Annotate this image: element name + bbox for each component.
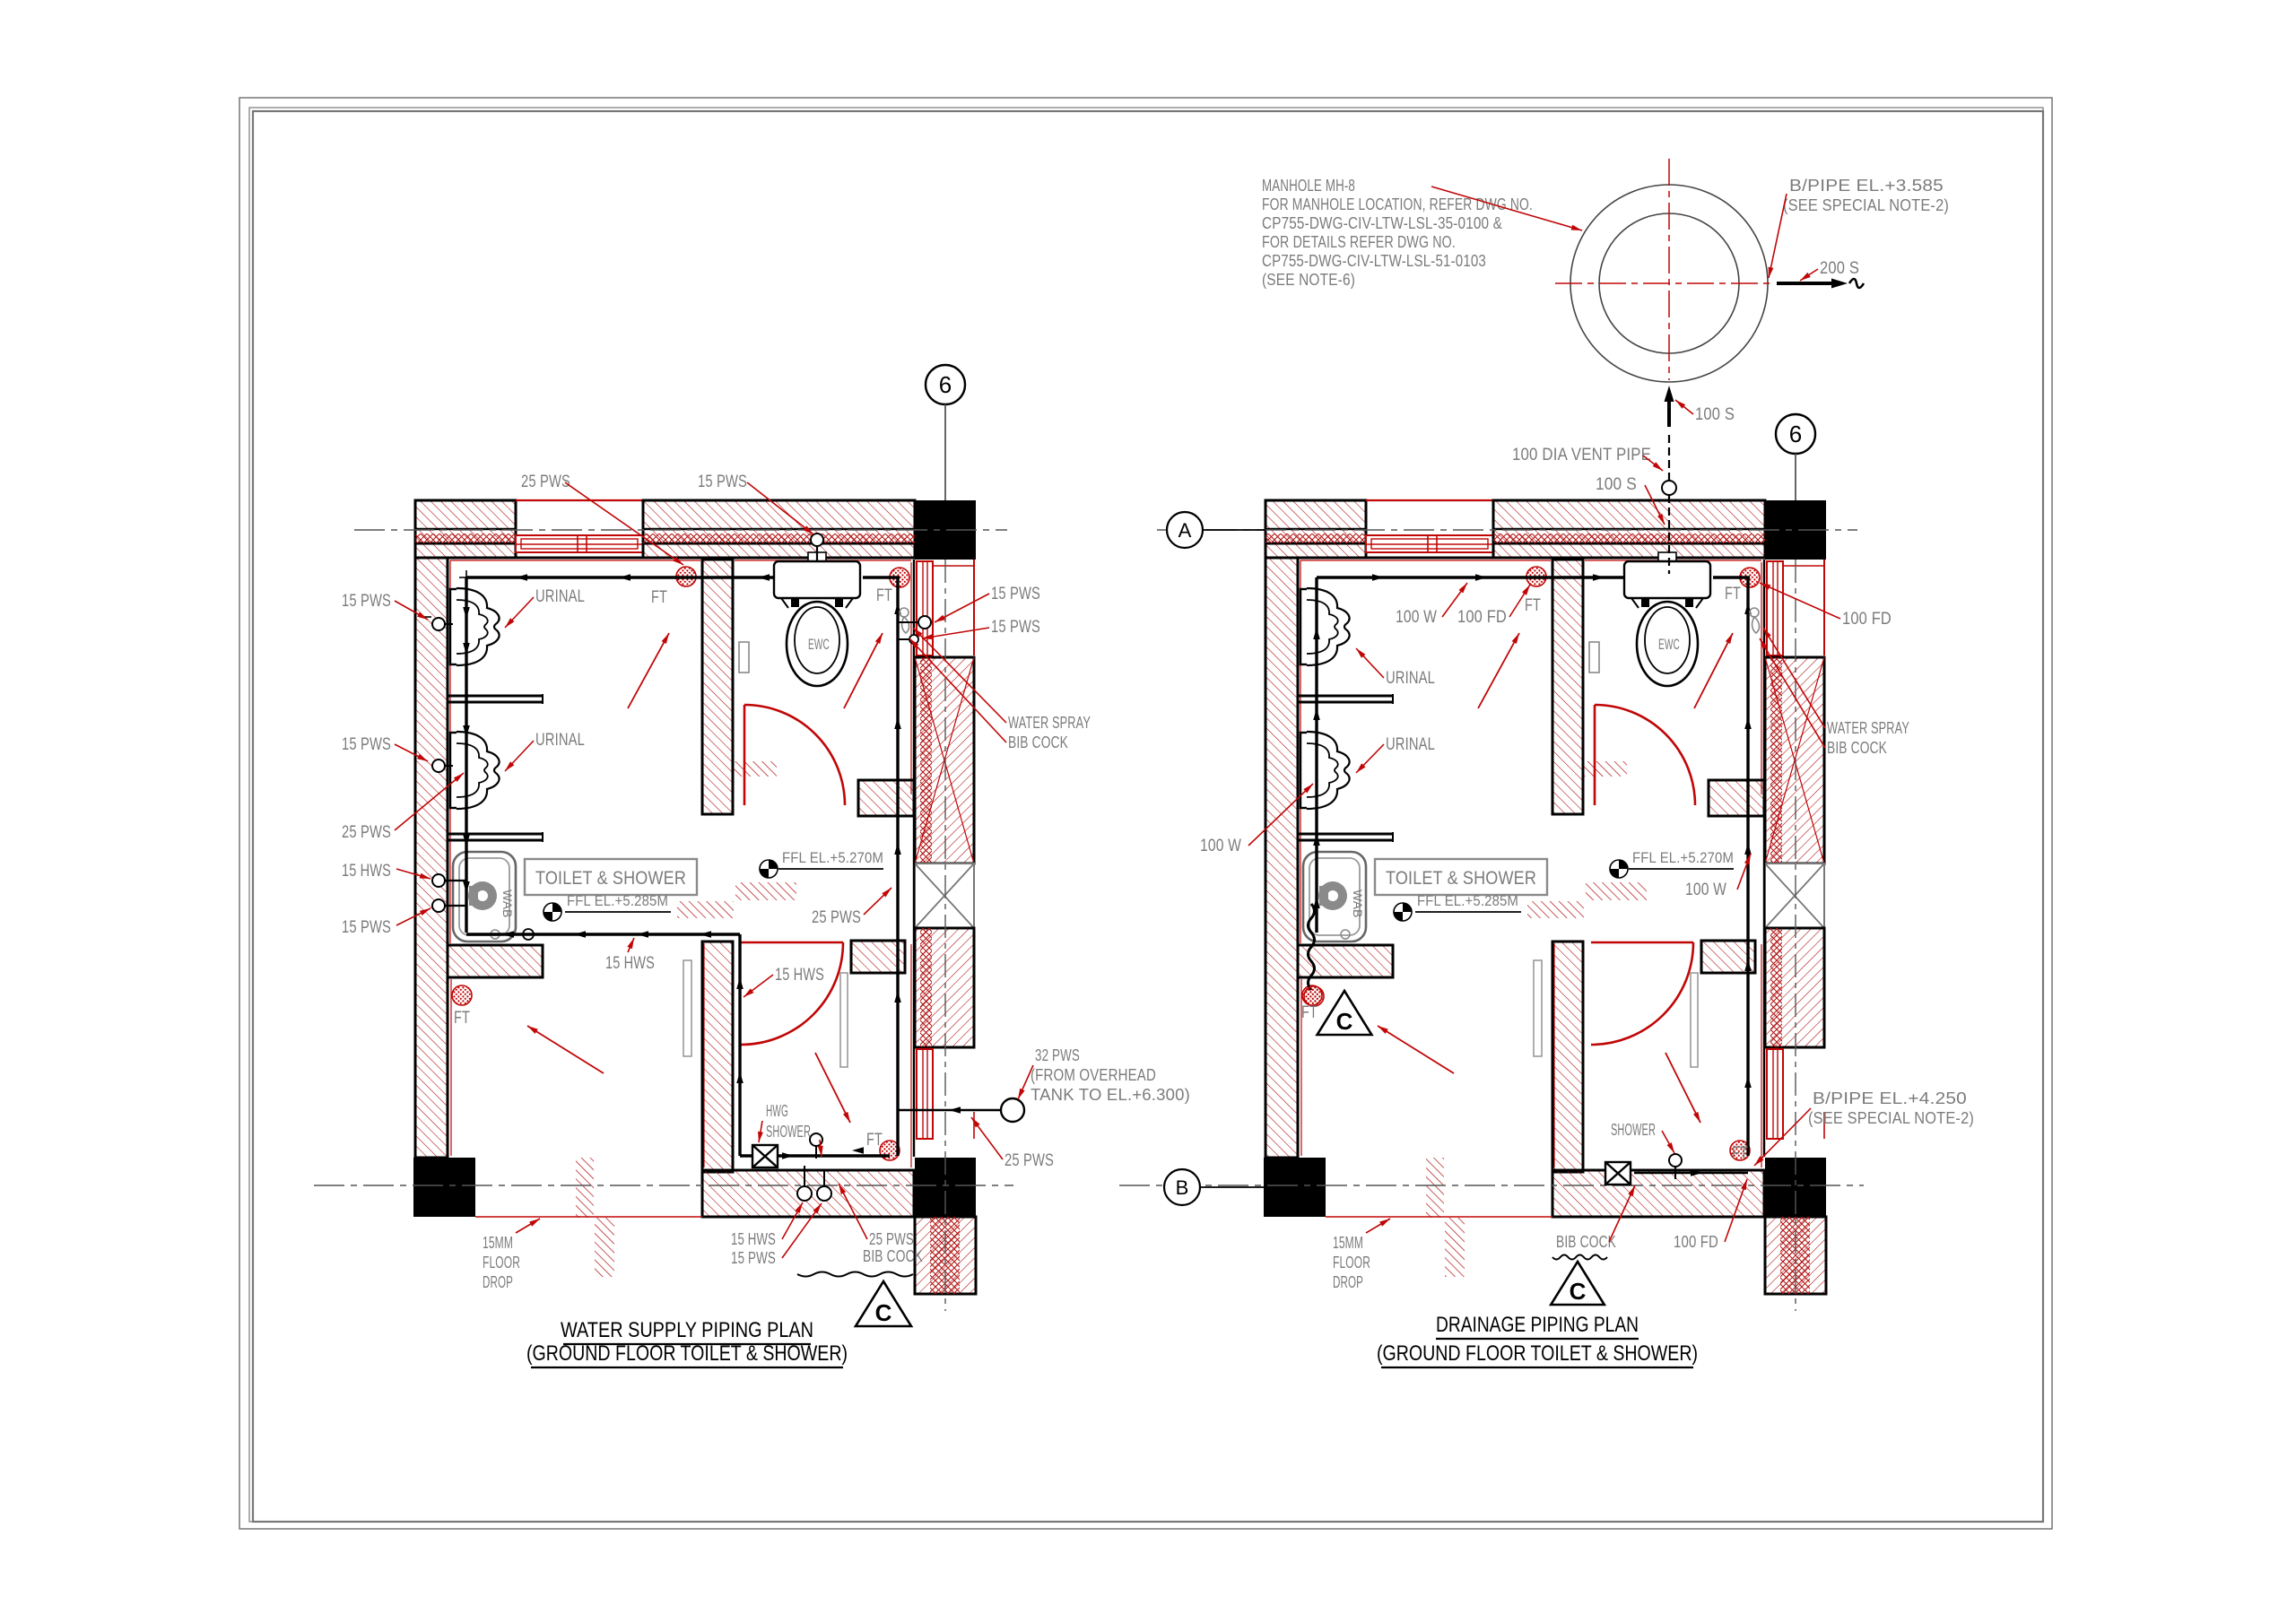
- svg-text:15 PWS: 15 PWS: [342, 591, 391, 611]
- svg-text:15 HWS: 15 HWS: [731, 1230, 776, 1248]
- svg-text:FT: FT: [1301, 1003, 1318, 1022]
- svg-text:15 HWS: 15 HWS: [775, 965, 824, 985]
- svg-text:WAB: WAB: [500, 890, 515, 917]
- svg-text:WAB: WAB: [1351, 890, 1365, 917]
- svg-text:WATER SUPPLY PIPING PLAN: WATER SUPPLY PIPING PLAN: [561, 1318, 813, 1342]
- svg-text:HWG: HWG: [766, 1102, 788, 1120]
- svg-text:15 PWS: 15 PWS: [991, 584, 1040, 603]
- svg-text:FLOOR: FLOOR: [1333, 1254, 1370, 1271]
- svg-text:(SEE NOTE-6): (SEE NOTE-6): [1262, 270, 1355, 289]
- svg-text:B: B: [1176, 1176, 1189, 1199]
- svg-text:32 PWS: 32 PWS: [1035, 1046, 1080, 1064]
- svg-text:15MM: 15MM: [1333, 1234, 1363, 1252]
- svg-text:C: C: [1570, 1278, 1587, 1305]
- svg-text:15MM: 15MM: [483, 1234, 513, 1252]
- svg-text:B/PIPE EL.+3.585: B/PIPE EL.+3.585: [1789, 177, 1944, 195]
- svg-text:FT: FT: [866, 1131, 883, 1150]
- svg-text:(SEE SPECIAL NOTE-2): (SEE SPECIAL NOTE-2): [1783, 196, 1949, 214]
- svg-text:EWC: EWC: [1658, 636, 1680, 653]
- svg-text:SHOWER: SHOWER: [1611, 1121, 1656, 1139]
- svg-text:TOILET & SHOWER: TOILET & SHOWER: [1386, 868, 1536, 889]
- svg-text:100 W: 100 W: [1685, 880, 1726, 899]
- svg-text:100 W: 100 W: [1396, 607, 1437, 627]
- svg-text:A: A: [1178, 519, 1192, 542]
- svg-text:100 DIA VENT PIPE: 100 DIA VENT PIPE: [1512, 445, 1651, 464]
- svg-text:BIB COCK: BIB COCK: [863, 1247, 923, 1265]
- svg-text:FFL EL.+5.285M: FFL EL.+5.285M: [567, 892, 668, 909]
- svg-text:100 FD: 100 FD: [1674, 1233, 1718, 1251]
- svg-text:FT: FT: [651, 588, 667, 607]
- svg-text:TOILET & SHOWER: TOILET & SHOWER: [535, 868, 686, 889]
- svg-text:15 PWS: 15 PWS: [698, 472, 747, 491]
- svg-text:15 HWS: 15 HWS: [605, 953, 655, 973]
- svg-text:WATER SPRAY: WATER SPRAY: [1827, 719, 1909, 737]
- svg-text:FT: FT: [876, 586, 892, 605]
- svg-text:15 PWS: 15 PWS: [991, 617, 1040, 637]
- svg-text:FT: FT: [1725, 585, 1741, 603]
- svg-text:EWC: EWC: [808, 636, 830, 653]
- svg-text:CP755-DWG-CIV-LTW-LSL-35-0100: CP755-DWG-CIV-LTW-LSL-35-0100 &: [1262, 213, 1502, 232]
- svg-text:15 PWS: 15 PWS: [731, 1249, 776, 1267]
- svg-text:FT: FT: [454, 1009, 470, 1028]
- svg-text:15 PWS: 15 PWS: [342, 734, 391, 754]
- svg-text:100 W: 100 W: [1200, 836, 1241, 855]
- svg-text:FT: FT: [1525, 596, 1541, 615]
- svg-text:200 S: 200 S: [1820, 259, 1859, 278]
- svg-text:100 S: 100 S: [1596, 474, 1637, 494]
- svg-text:FFL EL.+5.270M: FFL EL.+5.270M: [1632, 849, 1734, 866]
- svg-text:C: C: [875, 1299, 892, 1326]
- svg-text:BIB COCK: BIB COCK: [1008, 733, 1068, 751]
- svg-text:URINAL: URINAL: [535, 730, 585, 750]
- svg-text:MANHOLE MH-8: MANHOLE MH-8: [1262, 176, 1355, 195]
- svg-text:DROP: DROP: [1333, 1273, 1363, 1291]
- svg-text:CP755-DWG-CIV-LTW-LSL-51-0103: CP755-DWG-CIV-LTW-LSL-51-0103: [1262, 251, 1486, 270]
- svg-text:FLOOR: FLOOR: [483, 1254, 520, 1271]
- svg-text:25 PWS: 25 PWS: [1004, 1150, 1054, 1170]
- svg-text:BIB COCK: BIB COCK: [1556, 1233, 1616, 1251]
- svg-text:25 PWS: 25 PWS: [812, 907, 861, 927]
- svg-text:FFL EL.+5.285M: FFL EL.+5.285M: [1417, 892, 1518, 909]
- svg-text:(FROM OVERHEAD: (FROM OVERHEAD: [1031, 1066, 1156, 1084]
- svg-text:100 FD: 100 FD: [1842, 609, 1892, 629]
- svg-text:C: C: [1336, 1008, 1353, 1035]
- svg-text:DRAINAGE PIPING PLAN: DRAINAGE PIPING PLAN: [1436, 1313, 1639, 1337]
- svg-text:URINAL: URINAL: [1386, 734, 1435, 754]
- svg-text:TANK TO EL.+6.300): TANK TO EL.+6.300): [1031, 1086, 1190, 1104]
- svg-text:15 HWS: 15 HWS: [342, 861, 391, 881]
- svg-text:100 S: 100 S: [1695, 405, 1735, 424]
- svg-text:25 PWS: 25 PWS: [521, 472, 570, 491]
- svg-text:URINAL: URINAL: [535, 586, 585, 606]
- svg-text:6: 6: [1789, 421, 1802, 447]
- svg-text:FT: FT: [1732, 1144, 1748, 1163]
- svg-text:25 PWS: 25 PWS: [342, 822, 391, 842]
- svg-text:SHOWER: SHOWER: [766, 1123, 811, 1141]
- svg-text:FFL EL.+5.270M: FFL EL.+5.270M: [782, 849, 883, 866]
- svg-text:15 PWS: 15 PWS: [342, 917, 391, 937]
- svg-text:BIB COCK: BIB COCK: [1827, 739, 1887, 757]
- svg-text:URINAL: URINAL: [1386, 668, 1435, 688]
- svg-text:B/PIPE EL.+4.250: B/PIPE EL.+4.250: [1813, 1089, 1967, 1107]
- svg-text:WATER SPRAY: WATER SPRAY: [1008, 714, 1091, 732]
- svg-text:(GROUND FLOOR TOILET & SHOWER): (GROUND FLOOR TOILET & SHOWER): [526, 1341, 848, 1366]
- svg-text:DROP: DROP: [483, 1273, 513, 1291]
- svg-text:100 FD: 100 FD: [1457, 607, 1507, 627]
- svg-text:25 PWS: 25 PWS: [869, 1230, 914, 1248]
- svg-text:FOR DETAILS REFER DWG NO.: FOR DETAILS REFER DWG NO.: [1262, 232, 1456, 251]
- svg-text:(SEE SPECIAL NOTE-2): (SEE SPECIAL NOTE-2): [1808, 1109, 1974, 1127]
- svg-text:(GROUND FLOOR TOILET & SHOWER): (GROUND FLOOR TOILET & SHOWER): [1377, 1341, 1698, 1366]
- svg-text:6: 6: [939, 371, 952, 398]
